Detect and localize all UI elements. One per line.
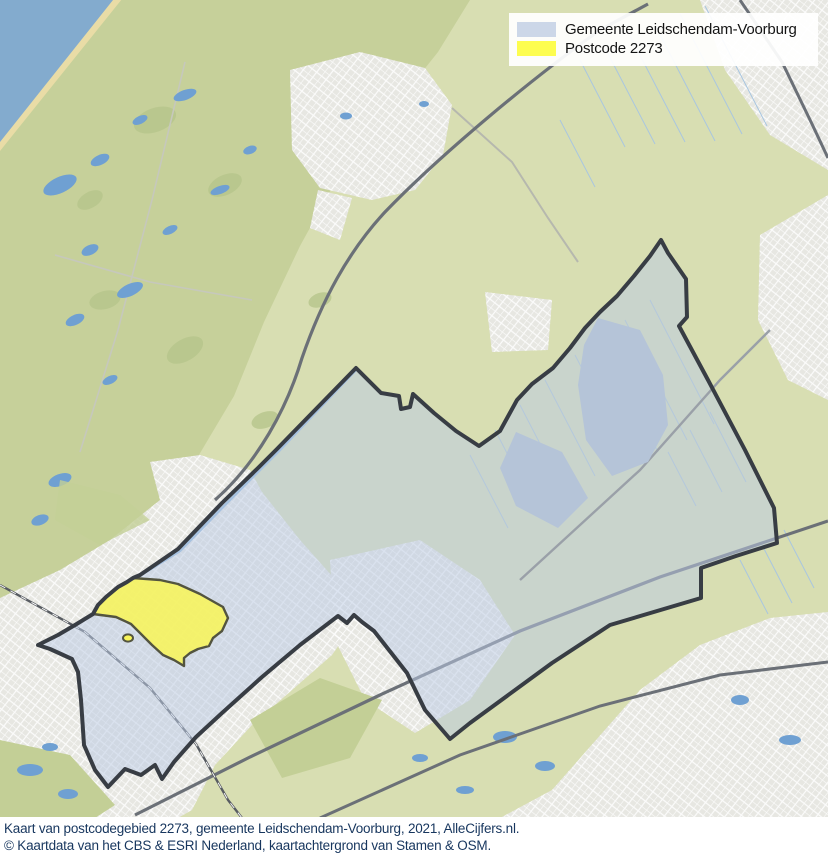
caption-line-1: Kaart van postcodegebied 2273, gemeente … (4, 820, 828, 837)
attribution: Kaart van postcodegebied 2273, gemeente … (0, 817, 828, 861)
basemap (0, 0, 828, 818)
caption-line-2: © Kaartdata van het CBS & ESRI Nederland… (4, 837, 828, 854)
legend-swatch-postcode (517, 41, 556, 56)
legend-swatch-gemeente-container (517, 22, 556, 37)
legend-swatch-gemeente (517, 22, 556, 37)
map (0, 0, 828, 818)
page: Gemeente Leidschendam-Voorburg Postcode … (0, 0, 828, 861)
legend-item-gemeente: Gemeente Leidschendam-Voorburg (517, 21, 810, 38)
legend-swatch-postcode-container (517, 41, 556, 56)
legend-label-gemeente: Gemeente Leidschendam-Voorburg (565, 21, 797, 38)
map-legend: Gemeente Leidschendam-Voorburg Postcode … (509, 13, 818, 66)
postcode-2273-island (123, 634, 133, 641)
legend-label-postcode: Postcode 2273 (565, 40, 662, 57)
legend-item-postcode: Postcode 2273 (517, 40, 810, 57)
